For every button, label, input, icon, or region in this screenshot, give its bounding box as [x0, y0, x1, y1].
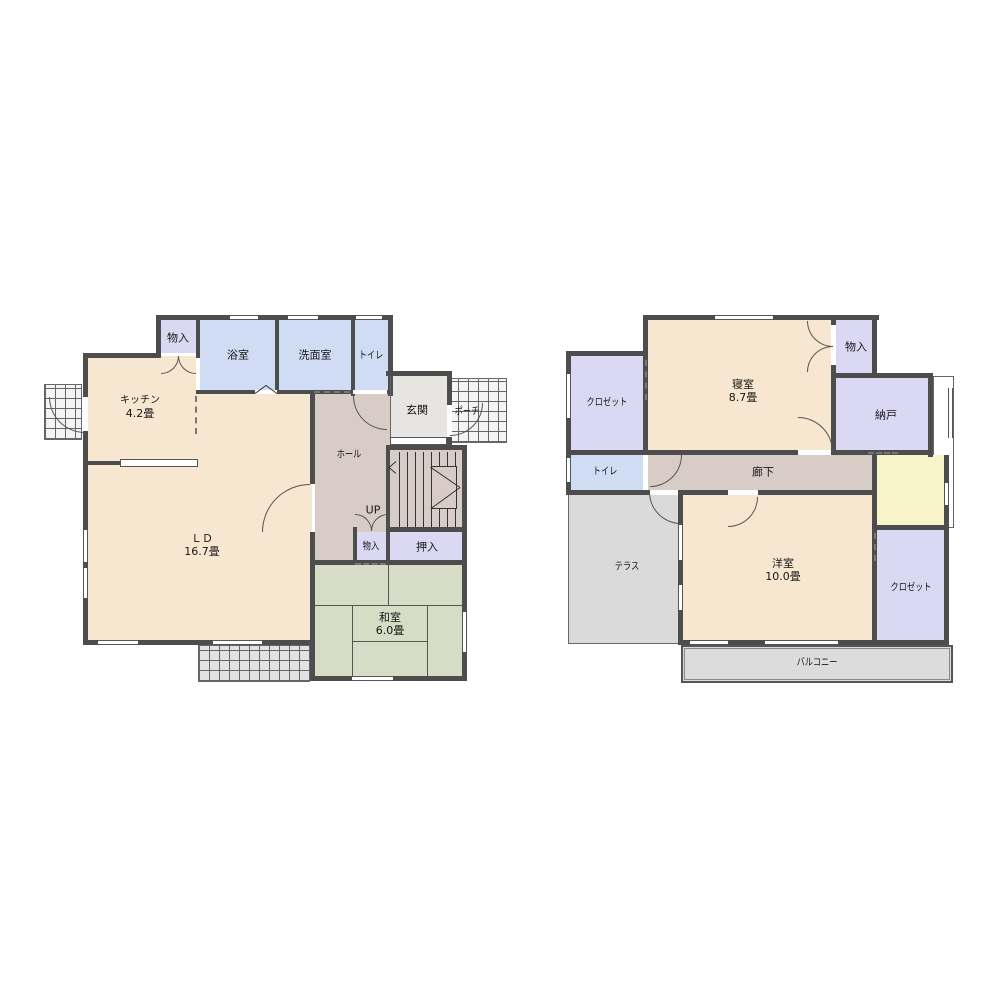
tatami-line [427, 605, 428, 676]
stair-tread [447, 509, 448, 527]
stair-tread [399, 452, 400, 527]
window [230, 315, 258, 320]
room-label-size: 6.0畳 [376, 624, 405, 637]
room-label: 洗面室 [299, 349, 332, 362]
terrace-hatch [198, 645, 310, 682]
stair-tread [447, 452, 448, 466]
stair-landing [431, 466, 457, 509]
room-label: トイレ [593, 466, 618, 479]
wall-segment [566, 490, 650, 495]
room-stairwell-2f [877, 455, 944, 525]
stair-tread [439, 452, 440, 466]
room-label: ＬＤ 16.7畳 [184, 532, 220, 558]
stair-tread [407, 452, 408, 527]
wall-segment [310, 390, 315, 484]
room-label-size: 8.7畳 [729, 391, 758, 404]
entry-step [390, 437, 447, 445]
wall-segment [83, 353, 88, 397]
door-opening [353, 390, 387, 394]
wall-segment [462, 445, 467, 532]
room-label: 洋室 10.0畳 [765, 557, 801, 583]
kitchen-counter [120, 459, 198, 467]
room-label: 和室 6.0畳 [376, 611, 405, 637]
room-label: 物入 [167, 332, 189, 345]
wall-segment [566, 450, 835, 455]
wall-segment [928, 373, 933, 457]
wall-segment [872, 640, 949, 645]
window [213, 640, 262, 645]
room-label: テラス [615, 561, 639, 574]
tatami-line [352, 641, 427, 642]
wall-segment [872, 525, 949, 530]
window [356, 315, 382, 320]
tatami-line [388, 565, 389, 605]
wall-segment [275, 315, 279, 394]
wall-segment [83, 431, 88, 530]
room-label-name: ＬＤ [184, 532, 220, 545]
stair-tread [439, 509, 440, 527]
room-label: トイレ [359, 350, 384, 363]
window [83, 530, 88, 562]
room-label: ポーチ [455, 406, 480, 419]
wall-segment [351, 315, 355, 396]
wall-segment [386, 527, 467, 532]
window [83, 568, 88, 598]
wall-segment [156, 315, 161, 358]
open-boundary [868, 452, 898, 454]
window [678, 525, 683, 560]
wall-segment [944, 525, 949, 645]
window [288, 315, 318, 320]
room-label: 物入 [363, 541, 379, 554]
window [765, 640, 838, 645]
room-label: 物入 [845, 341, 867, 354]
room-label-name: 寝室 [729, 378, 758, 391]
wall-segment [386, 445, 467, 450]
wall-segment [310, 532, 315, 562]
wall-segment [83, 598, 88, 645]
floor-plan-page: 物入 浴室 洗面室 トイレ キッチン 4.2畳 玄関 ポーチ ホール ＬＤ 16… [0, 0, 1000, 1000]
wall-segment [872, 315, 877, 378]
room-label: キッチン 4.2畳 [120, 394, 160, 420]
room-label-size: 4.2畳 [120, 407, 160, 420]
door-opening [728, 490, 758, 495]
room-label: クロゼット [587, 397, 628, 410]
wall-segment [386, 371, 452, 376]
open-boundary [195, 396, 197, 434]
wall-segment [447, 371, 452, 405]
stair-tread [415, 452, 416, 527]
tatami-line [315, 605, 462, 606]
wall-segment [831, 373, 933, 378]
room-label-size: 16.7畳 [184, 545, 220, 558]
stair-tread [455, 509, 456, 527]
window [566, 458, 571, 482]
room-label: 寝室 8.7畳 [729, 378, 758, 404]
window [98, 640, 138, 645]
window [948, 388, 953, 438]
room-label-name: 和室 [376, 611, 405, 624]
wall-segment [83, 461, 122, 465]
room-label: ホール [337, 449, 362, 462]
window [462, 612, 467, 652]
wall-segment [196, 315, 200, 358]
entry-hall-boundary [390, 376, 391, 445]
open-boundary [645, 360, 647, 400]
room-label: 廊下 [752, 466, 774, 479]
room-label: 浴室 [227, 349, 249, 362]
stair-tread [455, 452, 456, 466]
wall-segment [566, 351, 648, 356]
stairs-up-label: UP [366, 504, 381, 517]
room-label-size: 10.0畳 [765, 570, 801, 583]
room-label-name: 洋室 [765, 557, 801, 570]
room-label: 押入 [416, 541, 438, 554]
room-label-name: キッチン [120, 394, 160, 407]
window [352, 676, 393, 681]
room-label: 納戸 [875, 409, 897, 422]
window [566, 374, 571, 418]
room-label: クロゼット [891, 582, 932, 595]
open-boundary [355, 563, 386, 565]
open-boundary [314, 391, 350, 393]
window [690, 640, 728, 645]
window [944, 483, 949, 505]
window [678, 585, 683, 610]
room-label: バルコニー [797, 657, 838, 670]
window [715, 315, 773, 320]
stair-tread [423, 452, 424, 527]
room-label: 玄関 [406, 404, 428, 417]
open-boundary [874, 533, 876, 561]
wall-segment [310, 560, 315, 681]
wall-segment [83, 353, 161, 358]
wall-segment [678, 490, 877, 495]
